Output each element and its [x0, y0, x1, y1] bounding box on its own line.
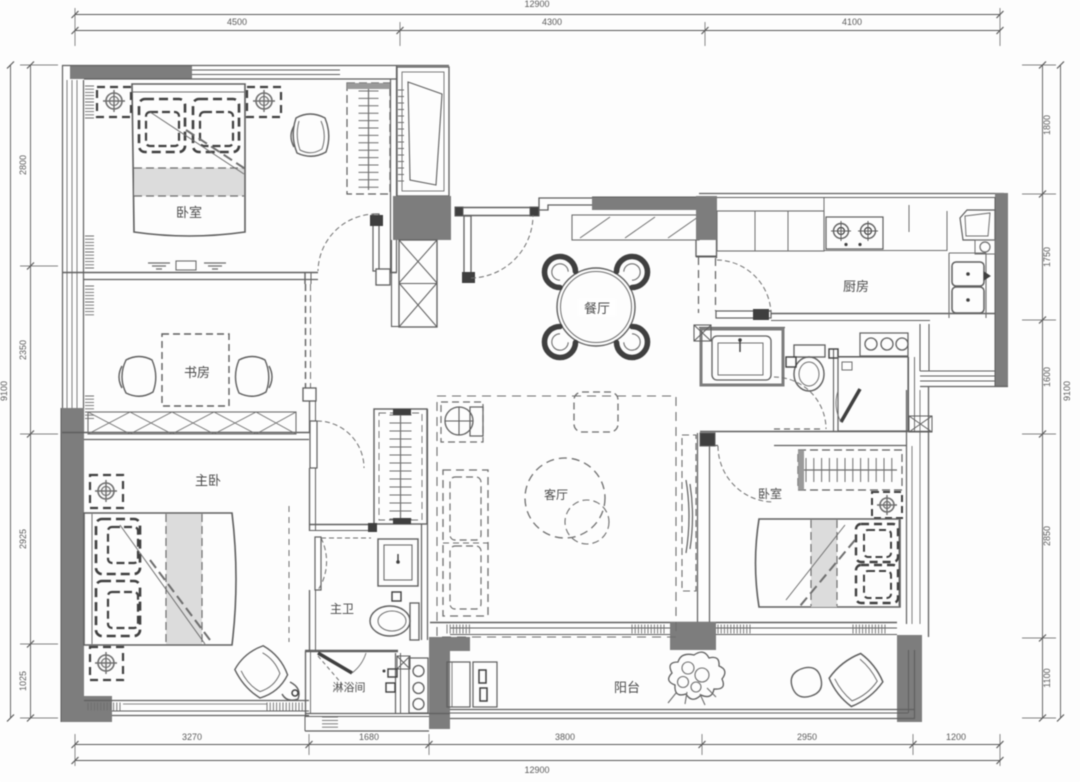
svg-text:9100: 9100 — [0, 381, 9, 401]
svg-text:1200: 1200 — [946, 732, 966, 742]
svg-text:12900: 12900 — [524, 0, 549, 9]
svg-text:1100: 1100 — [1042, 668, 1052, 687]
svg-text:主卧: 主卧 — [195, 473, 221, 488]
svg-text:餐厅: 餐厅 — [584, 301, 610, 316]
svg-text:客厅: 客厅 — [544, 487, 568, 502]
svg-text:2925: 2925 — [18, 529, 28, 549]
svg-text:9100: 9100 — [1062, 381, 1072, 401]
svg-text:4300: 4300 — [542, 17, 562, 27]
svg-text:厨房: 厨房 — [843, 279, 869, 294]
svg-text:主卫: 主卫 — [330, 602, 354, 616]
svg-text:1680: 1680 — [359, 732, 379, 742]
svg-text:1025: 1025 — [18, 671, 28, 691]
svg-text:阳台: 阳台 — [614, 680, 640, 695]
svg-text:2950: 2950 — [797, 732, 817, 742]
svg-text:淋浴间: 淋浴间 — [333, 681, 366, 694]
svg-text:书房: 书房 — [184, 365, 210, 380]
svg-text:1600: 1600 — [1042, 367, 1052, 387]
svg-text:1750: 1750 — [1042, 247, 1052, 267]
svg-text:2850: 2850 — [1042, 526, 1052, 546]
svg-text:卧室: 卧室 — [758, 486, 782, 501]
svg-text:1800: 1800 — [1042, 115, 1052, 135]
svg-text:3270: 3270 — [182, 732, 202, 742]
svg-text:2350: 2350 — [18, 340, 28, 360]
svg-text:2800: 2800 — [18, 155, 28, 175]
svg-text:4100: 4100 — [842, 17, 862, 27]
svg-text:卧室: 卧室 — [176, 205, 202, 220]
svg-text:4500: 4500 — [227, 17, 247, 27]
svg-text:12900: 12900 — [524, 765, 549, 775]
svg-text:3800: 3800 — [555, 732, 575, 742]
